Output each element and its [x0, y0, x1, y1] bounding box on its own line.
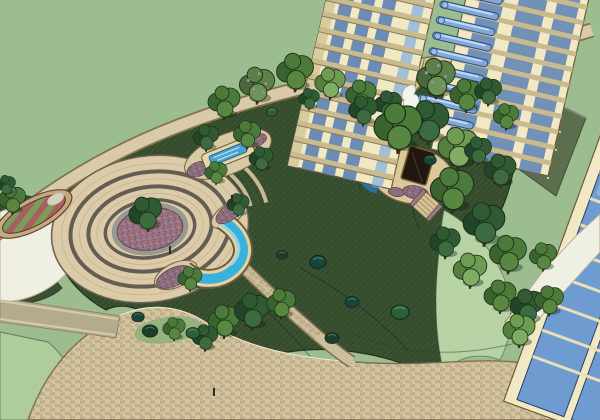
person-figure	[213, 388, 215, 396]
bush	[186, 328, 200, 339]
bush	[391, 305, 409, 319]
person-figure	[169, 246, 171, 254]
tree	[0, 175, 16, 195]
bush	[310, 255, 327, 268]
landscape-render	[0, 0, 600, 420]
bush	[325, 333, 339, 344]
bush	[424, 155, 437, 165]
bush	[132, 312, 145, 322]
bush	[276, 251, 287, 260]
bush	[345, 297, 359, 308]
person-figure	[231, 195, 233, 203]
bush	[142, 325, 157, 337]
bush	[266, 108, 277, 117]
